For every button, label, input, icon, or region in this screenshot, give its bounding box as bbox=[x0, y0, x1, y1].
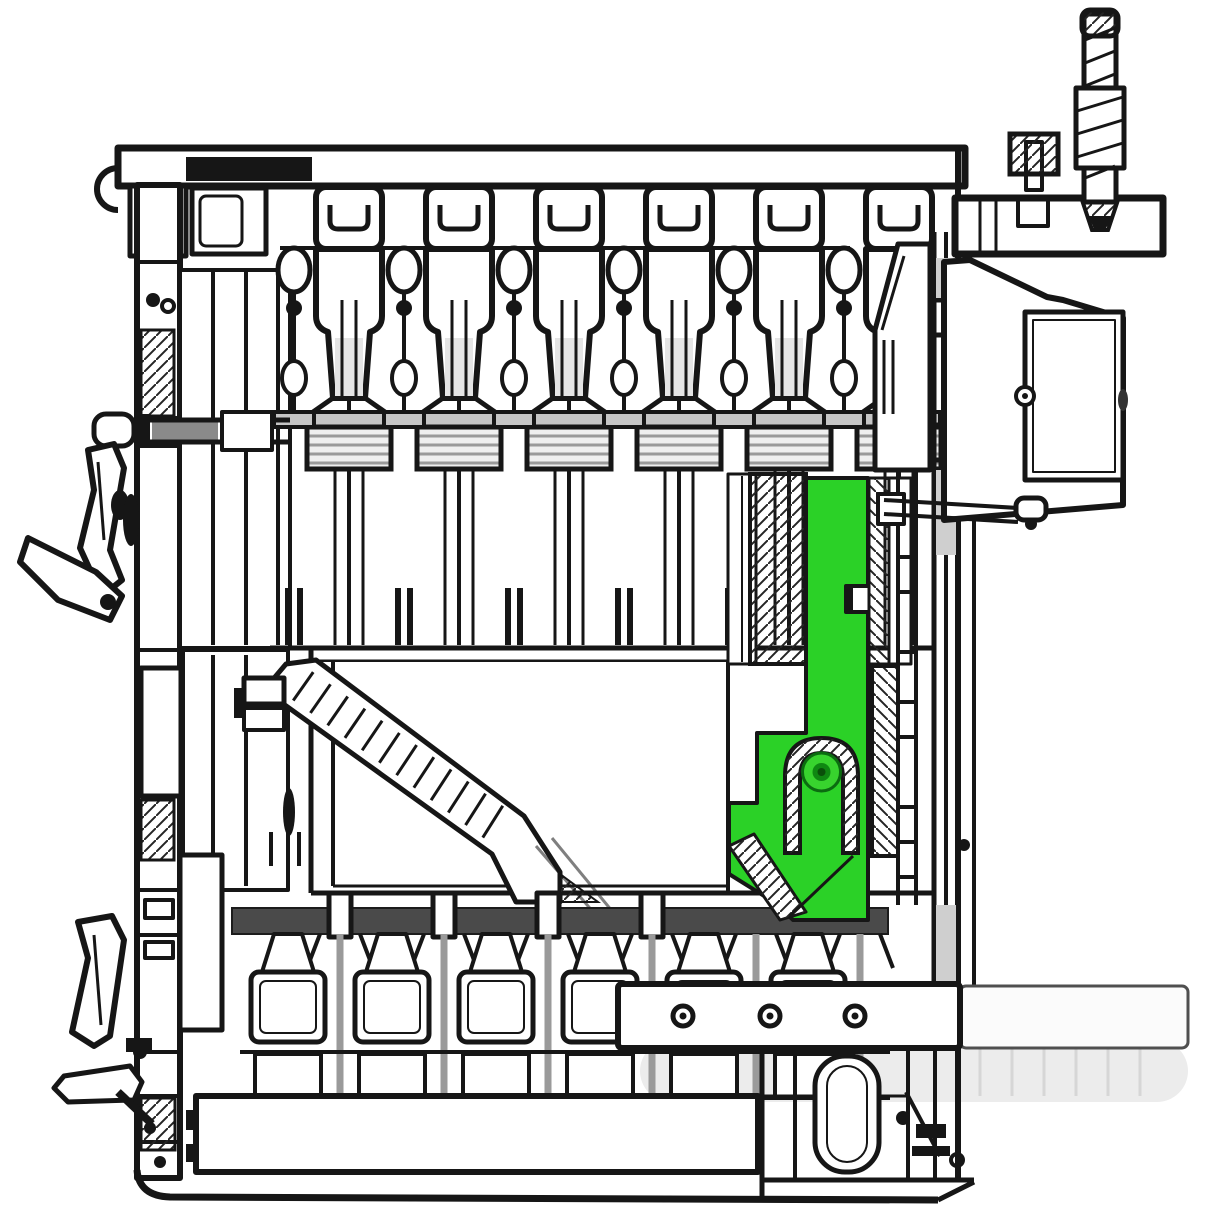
flue-side-box-shape bbox=[1025, 518, 1037, 530]
door-handles-and-pipe-shape bbox=[126, 1038, 152, 1052]
ash-pan-base bbox=[186, 1096, 758, 1172]
door-handles-and-pipe-shape bbox=[144, 1122, 156, 1134]
top-section bbox=[307, 186, 391, 645]
grate-post bbox=[433, 893, 455, 937]
left-wall-shape bbox=[145, 900, 173, 918]
bolt-hole bbox=[673, 1006, 693, 1026]
bolt-hole bbox=[845, 1006, 865, 1026]
lower-door-lever bbox=[54, 1066, 142, 1102]
base-tab bbox=[186, 1110, 198, 1130]
bolt-flange-bar bbox=[618, 984, 1188, 1048]
grate-post bbox=[537, 893, 559, 937]
gland-fitting bbox=[1010, 134, 1058, 174]
top-dark-band bbox=[186, 157, 312, 181]
door-handles-and-pipe-shape bbox=[100, 594, 116, 610]
right-flange-beam bbox=[955, 198, 1163, 254]
bottom-right-block-shape bbox=[912, 1146, 950, 1156]
boiler-cross-section-screenshot bbox=[0, 0, 1214, 1214]
door-handles-and-pipe-shape bbox=[123, 494, 139, 546]
left-wall bbox=[137, 185, 181, 1178]
base-tab bbox=[186, 1144, 198, 1162]
chute-bolt bbox=[234, 688, 246, 718]
ash-pan-base-shape bbox=[196, 1096, 758, 1172]
left-wall-shape bbox=[145, 942, 173, 958]
refractory-packing-upper-shape bbox=[750, 474, 806, 664]
right-wall-ladder-shape bbox=[936, 905, 956, 983]
wall-bolt bbox=[958, 839, 970, 851]
top-section bbox=[637, 186, 721, 645]
bottom-right-block-shape bbox=[896, 1111, 910, 1125]
drain-bolt bbox=[916, 1124, 946, 1138]
top-right-fittings bbox=[955, 10, 1163, 254]
grate-post bbox=[329, 893, 351, 937]
bottom-section bbox=[459, 934, 533, 1098]
left-wall-shape bbox=[141, 668, 181, 796]
cover-knob bbox=[1016, 498, 1046, 520]
feed-chute-shape bbox=[244, 708, 284, 730]
wall-stud bbox=[283, 788, 295, 836]
boiler-cross-section-diagram bbox=[0, 0, 1214, 1214]
cleanout-cover bbox=[1025, 312, 1123, 480]
bottom-section bbox=[355, 934, 429, 1098]
top-section bbox=[417, 186, 501, 645]
refractory-packing-lower bbox=[872, 666, 898, 856]
refractory-packing-lower-shape bbox=[872, 666, 898, 856]
bar-extension bbox=[960, 986, 1188, 1048]
flange-bar bbox=[618, 984, 960, 1048]
rod-cap bbox=[1082, 10, 1118, 36]
bolt-hole bbox=[760, 1006, 780, 1026]
chute-mount bbox=[244, 678, 284, 704]
bottom-section bbox=[251, 934, 325, 1098]
left-wall-shape bbox=[141, 330, 174, 416]
left-wall-shape bbox=[141, 800, 174, 860]
pivot-pin-core bbox=[818, 768, 826, 776]
left-wall-shape bbox=[154, 1156, 166, 1168]
door-handles-and-pipe-shape bbox=[152, 419, 218, 443]
pipe-bracket bbox=[222, 412, 272, 450]
top-section bbox=[527, 186, 611, 645]
outer-casing-shape bbox=[938, 1182, 974, 1200]
door-frame-edge bbox=[180, 855, 222, 1030]
return-pipe bbox=[815, 1056, 879, 1172]
left-wall-shape bbox=[146, 293, 160, 307]
cover-latch-lens bbox=[1118, 389, 1128, 411]
flue-side-box-shape bbox=[1022, 393, 1028, 399]
left-slat-panel-shape bbox=[180, 270, 290, 648]
grate-post bbox=[641, 893, 663, 937]
